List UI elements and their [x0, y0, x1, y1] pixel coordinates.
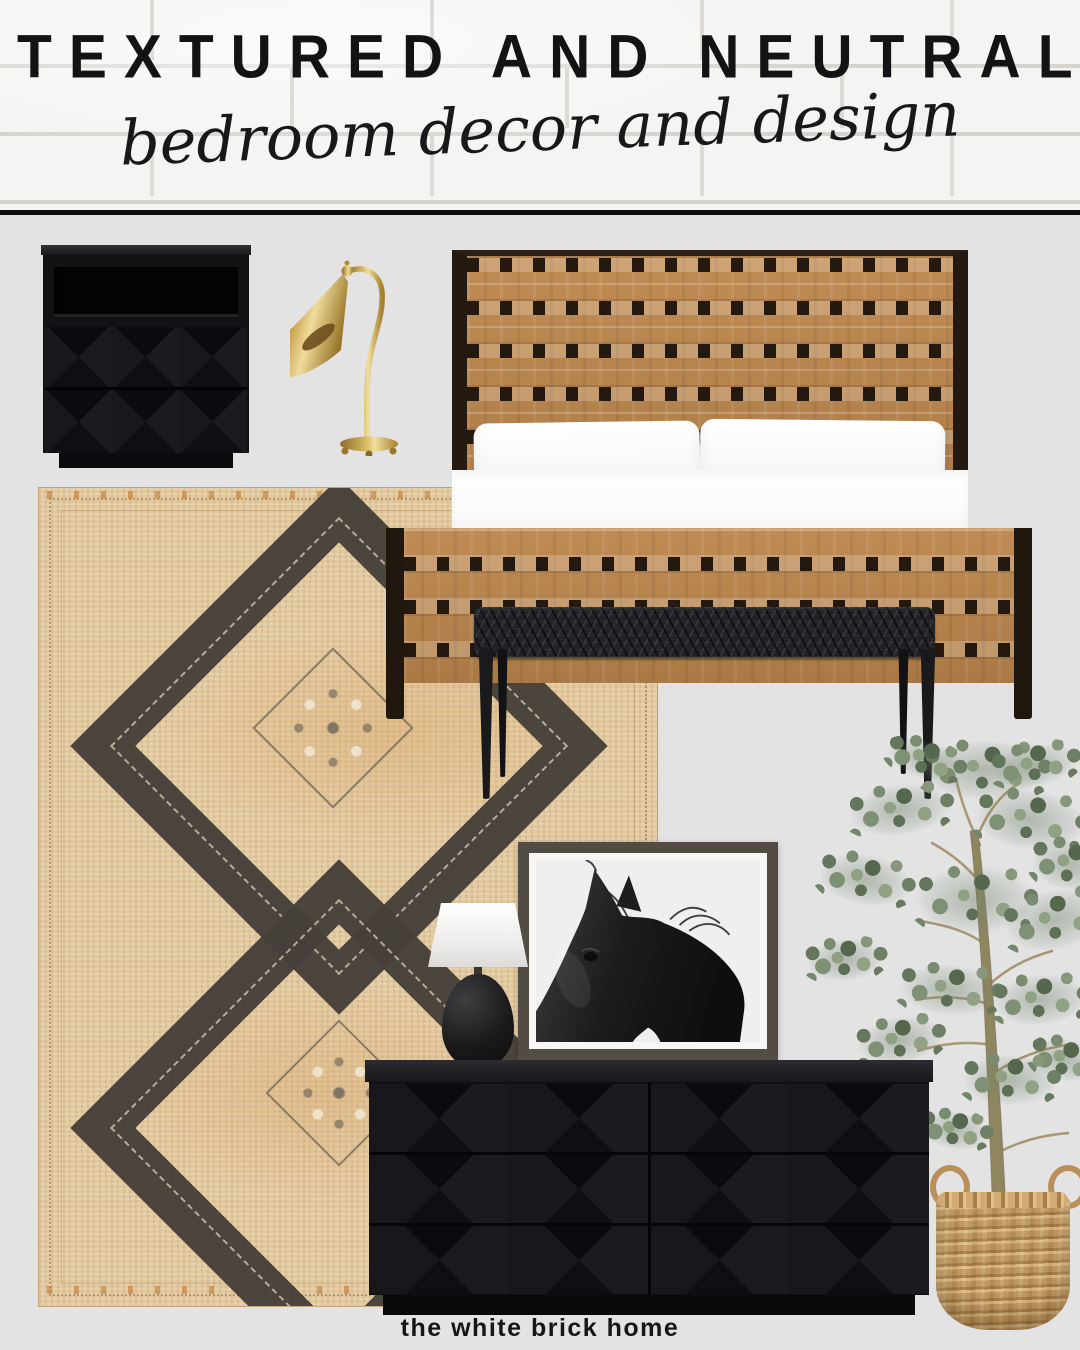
nightstand-open-shelf	[54, 267, 238, 317]
nightstand-drawer	[45, 390, 247, 453]
black-geometric-nightstand	[41, 245, 251, 468]
nightstand-drawer	[45, 327, 247, 387]
black-geometric-dresser	[365, 1060, 933, 1315]
bench-leg-rear-left	[497, 649, 508, 777]
basket-rim	[938, 1192, 1068, 1208]
lamp-gourd-base	[442, 974, 514, 1068]
black-table-lamp	[428, 903, 528, 1068]
lamp-shade-white	[428, 903, 528, 967]
horse-photo	[536, 860, 760, 1042]
dresser-body	[369, 1082, 929, 1295]
dresser-plinth	[383, 1295, 915, 1315]
nightstand-top	[41, 245, 251, 255]
lamp-foot	[342, 448, 349, 455]
nightstand-plinth	[59, 453, 233, 468]
bench-leg-front-left	[478, 649, 494, 799]
bed-footboard-post-left	[386, 528, 404, 719]
moodboard-canvas: TEXTURED AND NEUTRAL bedroom decor and d…	[0, 0, 1080, 1350]
dresser-center-divider	[648, 1082, 651, 1295]
horse-eye	[584, 952, 597, 962]
art-mat	[529, 853, 767, 1049]
foliage-cluster	[955, 1050, 1065, 1110]
header-divider-line	[0, 210, 1080, 215]
bed-footboard-post-right	[1014, 528, 1032, 719]
lamp-cone-shade	[290, 274, 348, 377]
lamp-finial	[345, 261, 350, 266]
dresser-top	[365, 1060, 933, 1082]
brick-wall-header: TEXTURED AND NEUTRAL bedroom decor and d…	[0, 0, 1080, 210]
horse-art-frame	[518, 842, 778, 1060]
lamp-arm	[347, 269, 382, 440]
lamp-joint-ball	[342, 266, 353, 277]
bench-seat	[474, 607, 935, 657]
woven-basket-planter	[936, 1192, 1070, 1330]
horse-illustration	[536, 860, 760, 1042]
